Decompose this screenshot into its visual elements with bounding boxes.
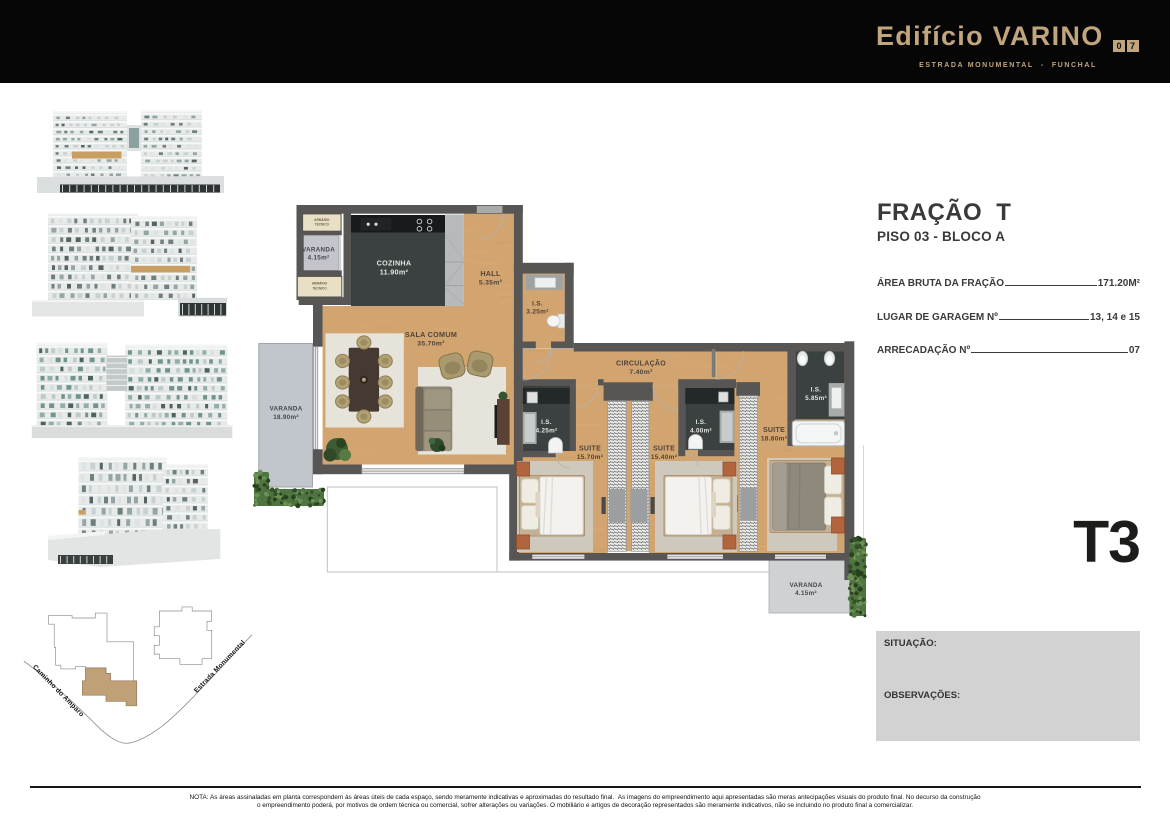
svg-text:SALA COMUM: SALA COMUM bbox=[405, 330, 457, 339]
svg-text:5.35m²: 5.35m² bbox=[479, 280, 503, 287]
svg-text:ARMÁRIO: ARMÁRIO bbox=[314, 217, 330, 222]
svg-text:TÉCNICO: TÉCNICO bbox=[312, 285, 327, 290]
svg-text:I.S.: I.S. bbox=[532, 301, 543, 308]
svg-text:TÉCNICO: TÉCNICO bbox=[315, 221, 330, 226]
svg-text:CIRCULAÇÃO: CIRCULAÇÃO bbox=[616, 359, 666, 368]
svg-text:VARANDA: VARANDA bbox=[789, 582, 822, 589]
svg-text:7.40m²: 7.40m² bbox=[629, 369, 653, 376]
svg-text:Caminho do Amparo: Caminho do Amparo bbox=[31, 664, 85, 719]
svg-text:I.S.: I.S. bbox=[696, 419, 707, 426]
svg-text:4.25m²: 4.25m² bbox=[536, 428, 558, 435]
svg-text:I.S.: I.S. bbox=[541, 419, 552, 426]
svg-text:I.S.: I.S. bbox=[811, 387, 822, 394]
svg-text:HALL: HALL bbox=[480, 269, 501, 278]
svg-text:3.25m²: 3.25m² bbox=[526, 309, 549, 316]
svg-text:35.70m²: 35.70m² bbox=[417, 341, 445, 348]
svg-text:SUITE: SUITE bbox=[653, 446, 675, 453]
svg-text:4.00m²: 4.00m² bbox=[690, 428, 712, 435]
svg-text:4.15m²: 4.15m² bbox=[795, 590, 817, 597]
svg-text:15.40m²: 15.40m² bbox=[651, 454, 678, 461]
svg-text:VARANDA: VARANDA bbox=[269, 406, 302, 413]
svg-text:COZINHA: COZINHA bbox=[377, 259, 412, 268]
svg-text:ARMÁRIO: ARMÁRIO bbox=[312, 280, 328, 285]
svg-text:5.85m²: 5.85m² bbox=[805, 395, 827, 402]
svg-text:VARANDA: VARANDA bbox=[302, 247, 335, 254]
svg-text:18.80m²: 18.80m² bbox=[761, 436, 788, 443]
svg-text:SUITE: SUITE bbox=[579, 446, 601, 453]
svg-text:SUITE: SUITE bbox=[763, 427, 785, 434]
svg-text:11.90m²: 11.90m² bbox=[380, 268, 409, 277]
svg-text:15.70m²: 15.70m² bbox=[577, 454, 604, 461]
svg-text:18.90m²: 18.90m² bbox=[273, 414, 299, 421]
svg-text:4.15m²: 4.15m² bbox=[308, 255, 330, 262]
